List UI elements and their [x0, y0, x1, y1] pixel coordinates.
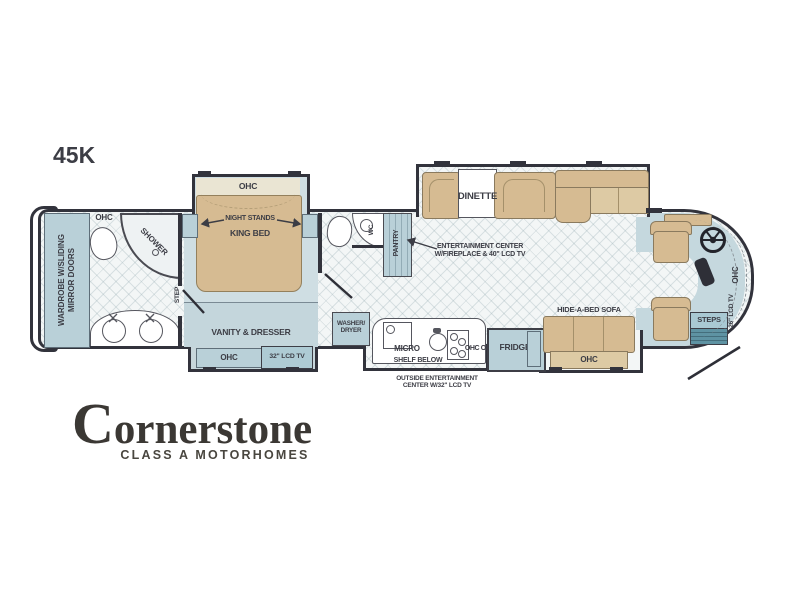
vanity-dresser-label: VANITY & DRESSER: [184, 328, 318, 338]
knob-icon: [386, 325, 395, 334]
kitchen-sink-icon: [429, 333, 447, 351]
bedroom-slide-ohc: OHC: [196, 348, 262, 368]
hide-a-bed-sofa: [543, 316, 635, 353]
king-bed: [196, 195, 302, 292]
slide-stop-tick: [646, 208, 662, 213]
floorplan-page: 45K WARDROBE W/SLIDING MIRROR DOORS OHC …: [0, 0, 800, 600]
pantry-label: PANTRY: [382, 225, 412, 261]
slide-stop-tick: [549, 367, 562, 372]
shelf-below-label: SHELF BELOW: [386, 357, 450, 365]
slide-stop-tick: [198, 171, 211, 176]
dinette-label: DINETTE: [450, 192, 505, 203]
burner-icon: [450, 333, 458, 341]
bedroom-slide-ohc-label: OHC: [197, 353, 261, 362]
sofa-end-cabinet: [527, 331, 541, 367]
sectional-chaise: [555, 187, 591, 223]
wardrobe-label-line1: WARDROBE W/SLIDING: [57, 234, 67, 326]
wardrobe-cabinet: WARDROBE W/SLIDING MIRROR DOORS: [44, 213, 90, 348]
wc-label: WC: [366, 218, 378, 242]
bedroom-tv: 32" LCD TV: [261, 346, 313, 369]
slide-stop-tick: [610, 367, 623, 372]
slide-stop-tick: [203, 367, 216, 372]
passenger-seat: [653, 307, 689, 341]
bench-curve: [503, 179, 545, 212]
entertainment-label-line1: ENTERTAINMENT CENTER: [425, 243, 535, 251]
bath-wall: [178, 316, 182, 346]
nightstand-left: [182, 214, 198, 238]
cushion-divider: [573, 317, 574, 352]
micro-label: MICRO: [385, 344, 429, 353]
slide-stop-tick: [288, 171, 301, 176]
hide-a-bed-label: HIDE-A-BED SOFA: [540, 306, 638, 315]
king-bed-label: KING BED: [198, 229, 302, 239]
entertainment-label-line2: W/FIREPLACE & 40" LCD TV: [425, 251, 535, 259]
cushion-divider: [618, 188, 619, 213]
midbath-wall: [352, 245, 383, 248]
washer-label-line2: DRYER: [333, 327, 369, 334]
washer-label-line1: WASHER/: [333, 320, 369, 327]
shower-drain-icon: [152, 249, 159, 256]
driver-seat: [653, 231, 689, 263]
midbath-wall: [318, 213, 322, 273]
slide-stop-tick: [586, 161, 602, 166]
nightstand-right: [302, 214, 318, 238]
burner-icon: [450, 347, 458, 355]
night-stands-label: NIGHT STANDS: [213, 215, 287, 223]
bedroom-tv-label: 32" LCD TV: [262, 353, 312, 361]
slide-stop-tick: [434, 161, 450, 166]
brand-tagline: CLASS A MOTORHOMES: [110, 448, 320, 462]
washer-dryer: WASHER/ DRYER: [332, 312, 370, 346]
brand-logo: Cornerstone: [72, 390, 312, 457]
wardrobe-label-line2: MIRROR DOORS: [67, 234, 77, 326]
outside-ec-label-line2: CENTER W/32" LCD TV: [378, 382, 496, 389]
vanity-dresser-cabinet: [184, 302, 318, 347]
bath-ohc-label: OHC: [88, 213, 120, 222]
bed-ohc-label: OHC: [196, 182, 300, 192]
outside-ec-label-line1: OUTSIDE ENTERTAINMENT: [378, 375, 496, 382]
bed-pillow-line: [201, 194, 295, 209]
slide-stop-tick: [286, 367, 299, 372]
sofa-ohc-label: OHC: [551, 355, 627, 364]
faucet-icon: [433, 328, 441, 333]
sink-icon: [102, 319, 126, 343]
sink-icon: [139, 319, 163, 343]
front-tv-label: 26" LCD TV: [726, 285, 738, 337]
cushion-divider: [603, 317, 604, 352]
step-label: STEP: [171, 282, 185, 308]
entry-door-swing: [688, 347, 740, 379]
model-number: 45K: [53, 142, 95, 168]
slide-stop-tick: [510, 161, 526, 166]
